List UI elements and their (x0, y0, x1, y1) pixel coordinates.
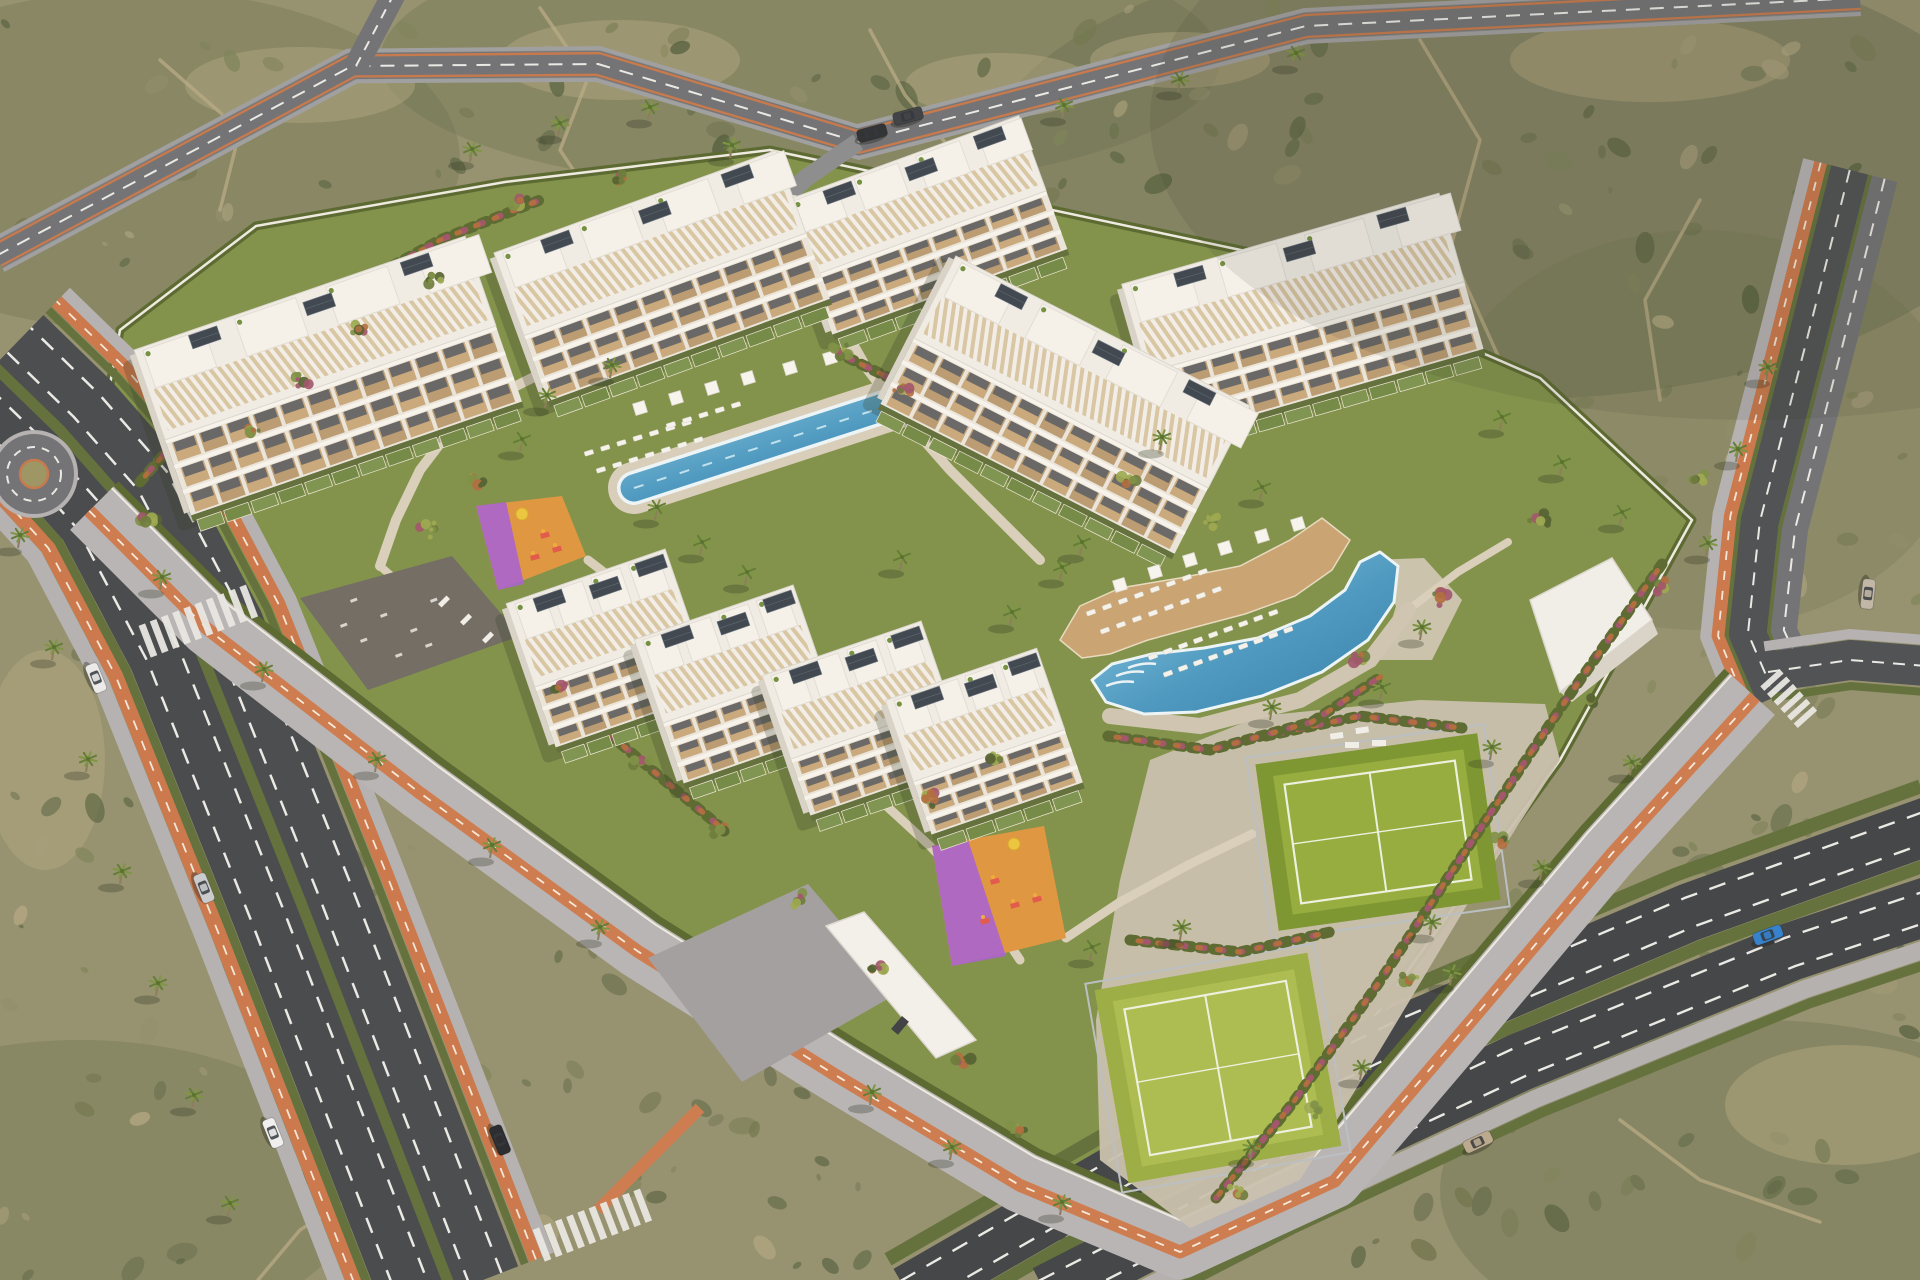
light-overlay-layer (0, 0, 1920, 1280)
aerial-render-stage (0, 0, 1920, 1280)
aerial-residential-complex-render (0, 0, 1920, 1280)
